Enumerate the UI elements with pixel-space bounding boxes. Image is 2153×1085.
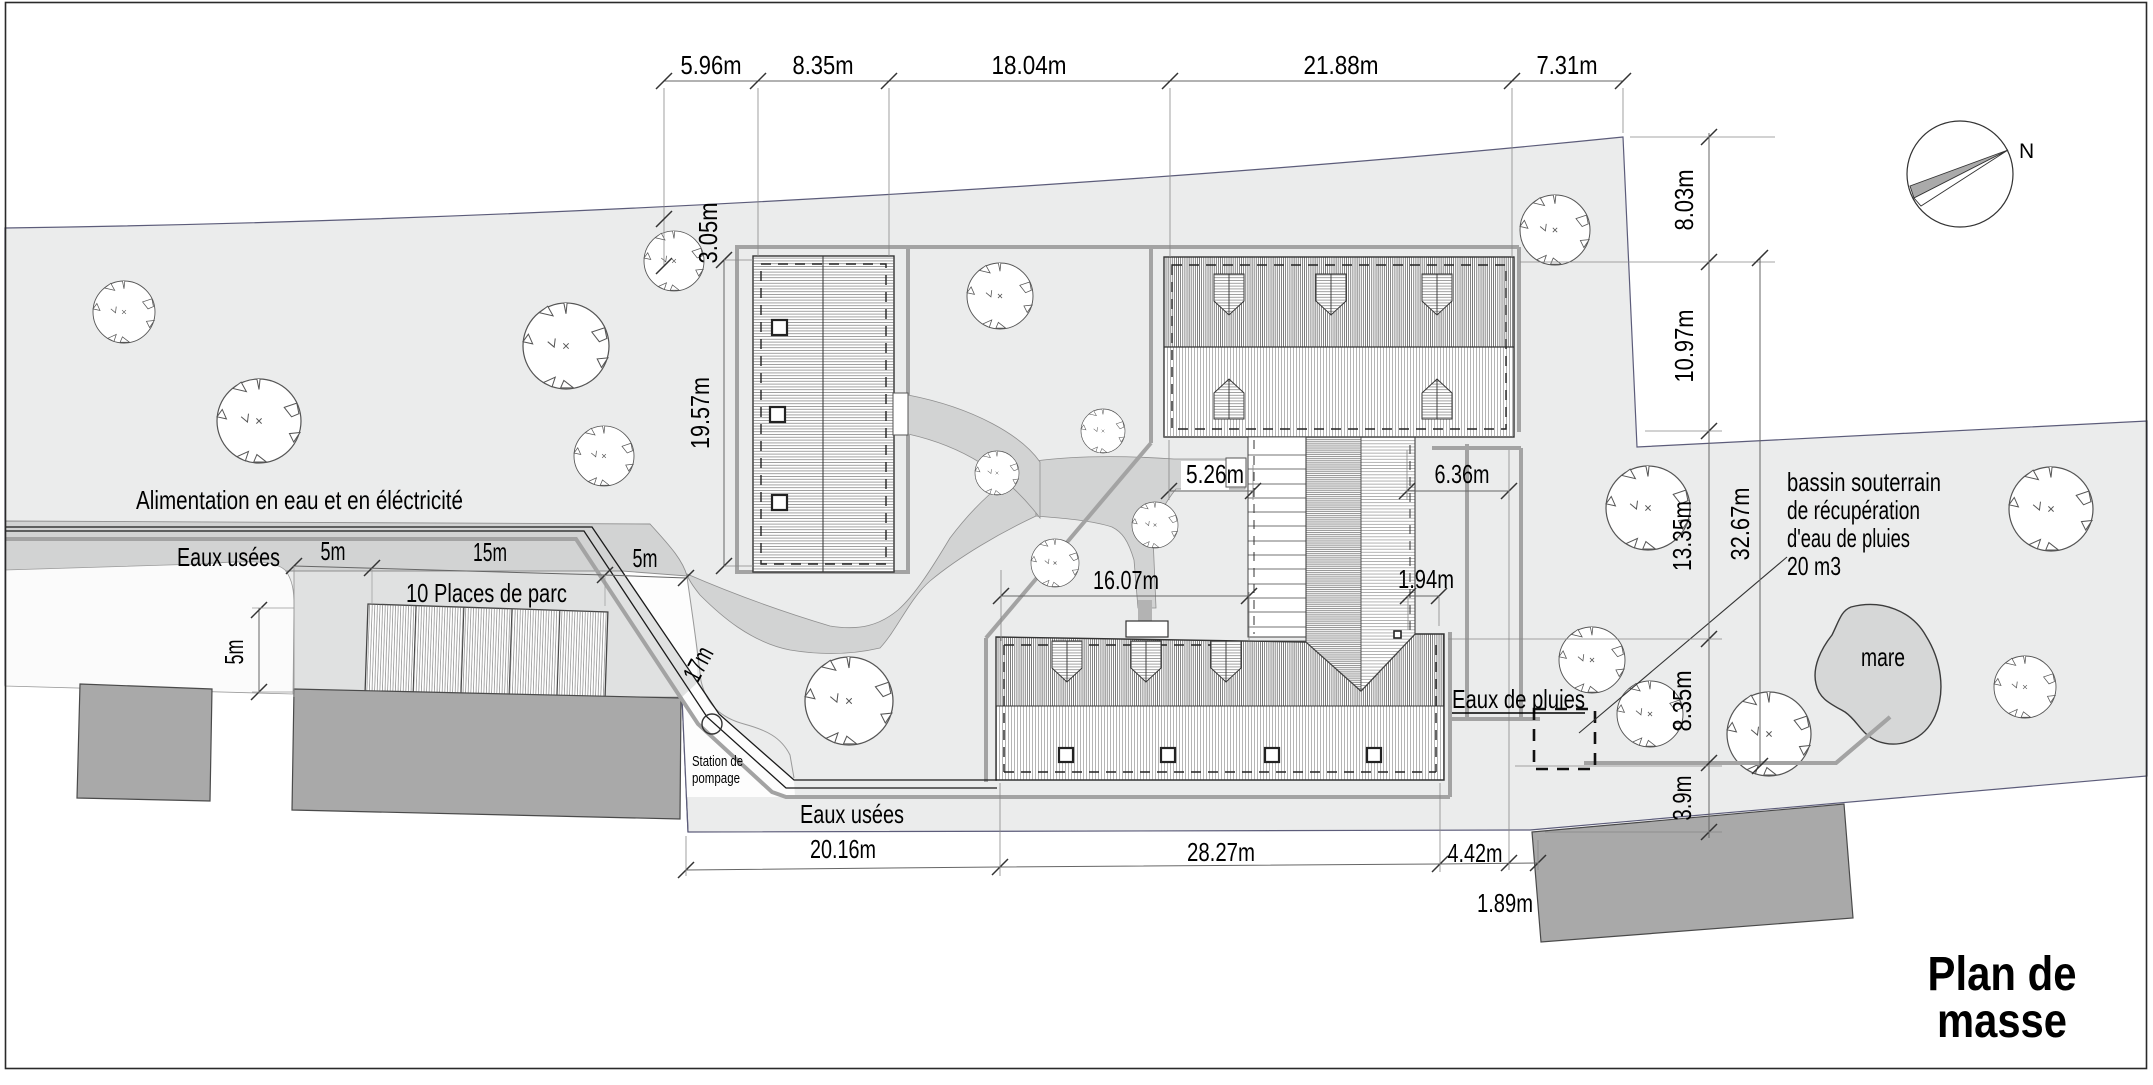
svg-text:N: N [2019, 140, 2034, 163]
svg-text:8.35m: 8.35m [793, 50, 854, 80]
svg-text:Station de: Station de [692, 753, 743, 770]
svg-text:10 Places de parc: 10 Places de parc [406, 578, 567, 608]
svg-text:Alimentation en eau et en éléc: Alimentation en eau et en éléctricité [136, 485, 463, 515]
svg-text:masse: masse [1937, 995, 2067, 1048]
svg-text:18.04m: 18.04m [992, 50, 1067, 80]
svg-text:6.36m: 6.36m [1435, 459, 1490, 489]
svg-text:Eaux de pluies: Eaux de pluies [1452, 684, 1585, 714]
svg-text:21.88m: 21.88m [1304, 50, 1379, 80]
svg-text:8.35m: 8.35m [1667, 671, 1697, 732]
svg-text:pompage: pompage [692, 770, 740, 787]
svg-text:3.9m: 3.9m [1667, 776, 1697, 821]
svg-text:Plan de: Plan de [1928, 948, 2077, 1001]
svg-text:20 m3: 20 m3 [1787, 551, 1841, 581]
svg-text:5.26m: 5.26m [1186, 459, 1244, 489]
svg-text:de récupération: de récupération [1787, 495, 1920, 525]
svg-text:d'eau de pluies: d'eau de pluies [1787, 523, 1910, 553]
svg-text:8.03m: 8.03m [1669, 170, 1699, 231]
svg-text:15m: 15m [473, 537, 507, 567]
svg-text:bassin souterrain: bassin souterrain [1787, 467, 1941, 497]
svg-text:13.35m: 13.35m [1667, 501, 1697, 571]
svg-text:5m: 5m [321, 536, 346, 566]
svg-text:10.97m: 10.97m [1669, 310, 1699, 383]
svg-text:3.05m: 3.05m [693, 203, 723, 264]
svg-text:4.42m: 4.42m [1448, 838, 1503, 868]
svg-text:5.96m: 5.96m [681, 50, 742, 80]
svg-text:7.31m: 7.31m [1537, 50, 1598, 80]
svg-text:20.16m: 20.16m [810, 834, 876, 864]
svg-text:1.89m: 1.89m [1477, 888, 1533, 918]
svg-text:28.27m: 28.27m [1187, 837, 1255, 867]
svg-text:1.94m: 1.94m [1398, 564, 1454, 594]
svg-text:16.07m: 16.07m [1093, 565, 1159, 595]
svg-text:Eaux usées: Eaux usées [800, 799, 904, 829]
svg-text:32.67m: 32.67m [1725, 488, 1755, 561]
svg-text:Eaux usées: Eaux usées [177, 542, 280, 572]
svg-text:5m: 5m [219, 640, 249, 665]
svg-text:5m: 5m [633, 543, 658, 573]
svg-text:19.57m: 19.57m [685, 377, 715, 449]
svg-text:mare: mare [1861, 642, 1905, 672]
